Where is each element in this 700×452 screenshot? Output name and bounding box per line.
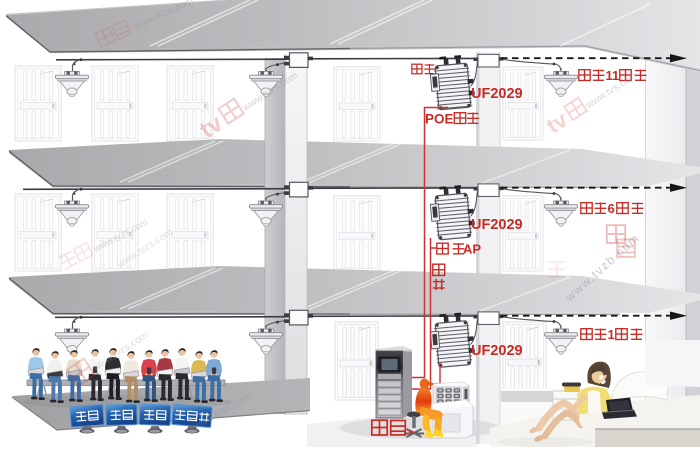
svg-text:UF2029: UF2029 (471, 217, 523, 233)
svg-text:1: 1 (608, 327, 615, 342)
svg-text:UF2029: UF2029 (471, 343, 523, 359)
svg-text:AP: AP (463, 242, 481, 257)
svg-text:POE: POE (425, 112, 454, 127)
svg-text:6: 6 (608, 201, 615, 216)
svg-text:UF2029: UF2029 (471, 86, 523, 102)
